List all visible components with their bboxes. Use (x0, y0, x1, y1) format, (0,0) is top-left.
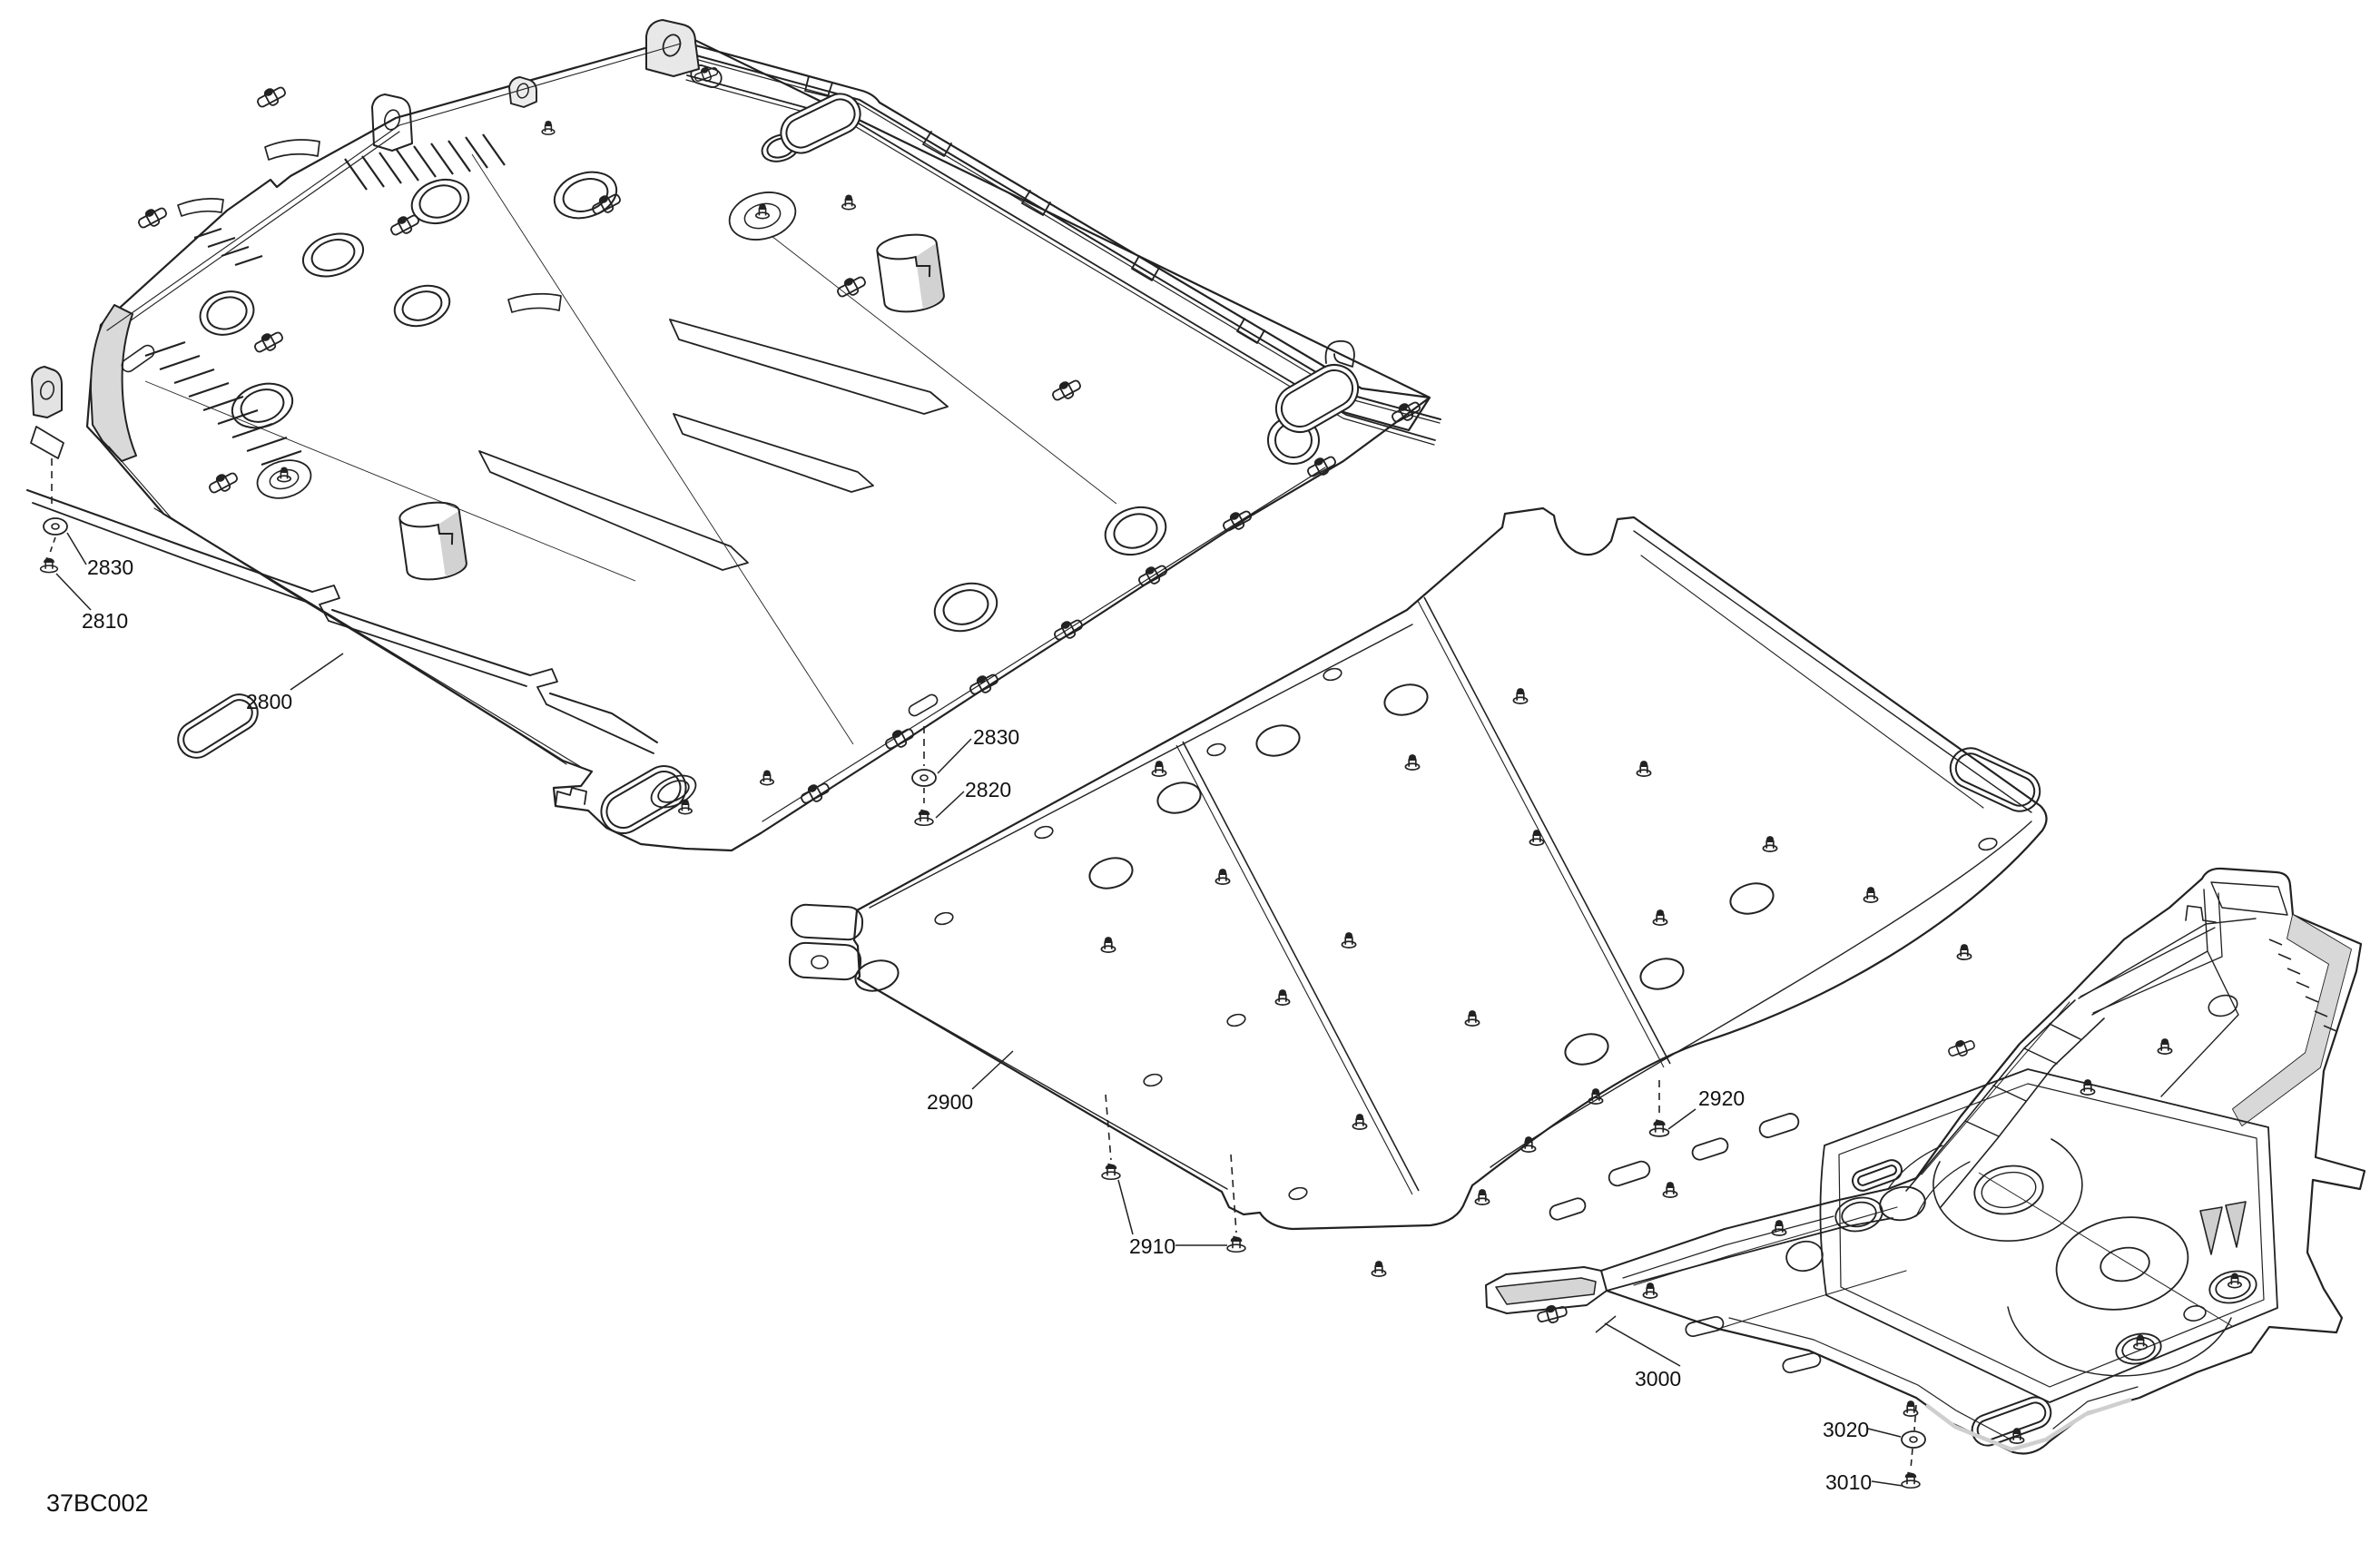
svg-text:37BC002: 37BC002 (46, 1489, 149, 1517)
svg-text:3000: 3000 (1635, 1367, 1681, 1391)
svg-text:2800: 2800 (246, 690, 292, 713)
svg-text:3010: 3010 (1825, 1470, 1872, 1494)
svg-text:2810: 2810 (82, 609, 128, 633)
svg-text:2830: 2830 (87, 555, 133, 579)
svg-text:2900: 2900 (927, 1090, 973, 1114)
svg-text:2910: 2910 (1129, 1234, 1175, 1258)
svg-text:3020: 3020 (1823, 1418, 1869, 1441)
svg-text:2830: 2830 (973, 725, 1019, 749)
svg-text:2820: 2820 (965, 778, 1011, 801)
svg-text:2920: 2920 (1698, 1086, 1745, 1110)
